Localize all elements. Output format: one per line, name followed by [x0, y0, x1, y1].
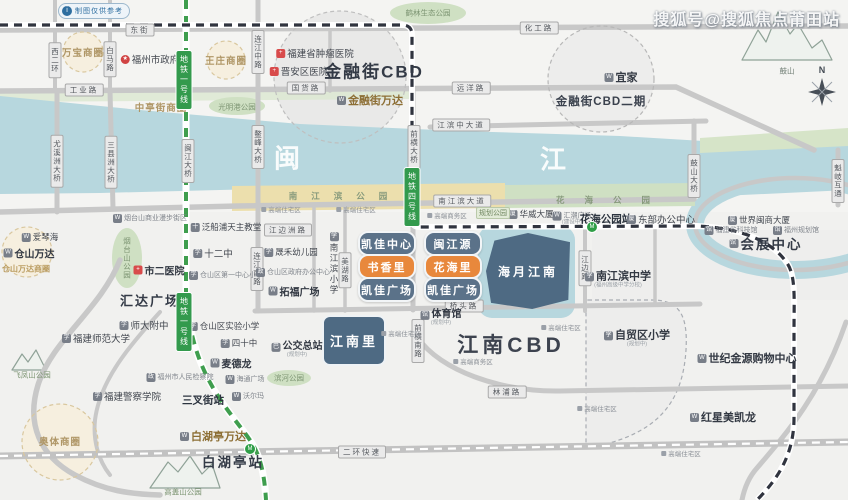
poi-text: 王庄商圈 [205, 53, 247, 67]
dot-icon [541, 325, 546, 330]
poi-label: W宜家 [605, 69, 638, 85]
poi-text: 晟禾幼儿园 [275, 246, 318, 258]
poi-text: 金融街CBD二期 [556, 93, 646, 109]
poi-label: 王庄商圈 [205, 53, 247, 67]
poi-label: 学师大附中 [119, 318, 168, 332]
shop-icon: W [226, 375, 235, 384]
shop-icon: W [113, 214, 122, 223]
poi-text: 奥体商圈 [39, 434, 81, 448]
road-label: 远洋路 [452, 82, 491, 95]
poi-label: 高端住宅区 [661, 448, 701, 458]
badge-text: 制图仅供参考 [75, 6, 123, 16]
poi-text: 四十中 [232, 337, 258, 349]
road-label: 鼓山大桥 [688, 154, 701, 198]
shop-icon: W [337, 96, 346, 105]
project-box: 花海里 [424, 254, 482, 279]
poi-label: 白湖亭站 [202, 451, 264, 471]
poi-text: 世纪金源购物中心 [709, 350, 797, 366]
dot-icon [336, 207, 341, 212]
hosp-icon: + [270, 67, 279, 76]
project-box: 闽江源 [424, 231, 482, 256]
poi-subtext: (福州高级中学分校) [594, 283, 642, 289]
school-icon: 学 [585, 273, 594, 282]
metro-station-label: 三叉街站 [182, 393, 224, 408]
shop-icon: W [553, 212, 562, 221]
poi-label: W世纪金源购物中心 [698, 350, 797, 366]
shop-icon: W [22, 233, 31, 242]
poi-text: 高端商务区 [434, 210, 467, 220]
poi-label: W红星美凯龙 [690, 409, 756, 425]
park-label: 烟台山公园 [122, 237, 133, 280]
school-icon: 学 [119, 321, 128, 330]
park-label: 滨河公园 [274, 373, 304, 384]
poi-text: 十二中 [204, 246, 233, 260]
road-label: 东街 [126, 24, 155, 37]
poi-label: 高端商务区 [453, 356, 493, 366]
shop-icon: W [690, 413, 699, 422]
poi-text: 福建警察学院 [104, 389, 161, 403]
poi-text: 仓山区第一中心小学 [200, 270, 263, 280]
hosp-icon: + [134, 266, 143, 275]
poi-text: 福州市人民检察院 [158, 372, 214, 382]
park-label: 高盖山公园 [164, 487, 202, 498]
poi-text: 福建师范大学 [73, 331, 130, 345]
poi-label: 政福州市人民检察院 [147, 372, 214, 382]
school-icon: 学 [193, 249, 202, 258]
gov-icon: ★ [121, 55, 130, 64]
metro-line-tag: 地铁四号线 [404, 167, 421, 227]
road-label: 江边洲路 [264, 224, 312, 237]
shop-icon: W [232, 392, 241, 401]
poi-label: 巴公交总站(规划中) [272, 342, 323, 358]
road-label: 林浦路 [488, 386, 527, 399]
poi-text: 市二医院 [145, 263, 185, 278]
road-label: 鳌峰大桥 [252, 125, 265, 169]
poi-label: 金融街CBD二期 [556, 93, 646, 109]
school-icon: 学 [93, 392, 102, 401]
poi-label: 学四十中 [221, 337, 258, 349]
poi-text: 高端住宅区 [343, 204, 376, 214]
poi-text: 华威大厦 [519, 208, 553, 220]
shop-icon: W [269, 287, 278, 296]
road-label: 国货路 [287, 82, 326, 95]
info-icon: i [62, 6, 72, 16]
poi-label: 学南江滨小学 [328, 232, 340, 296]
park-strip-label: 南江滨公园 [289, 190, 402, 202]
poi-label: W白湖亭万达 [180, 428, 246, 444]
poi-label: 学南江滨中学(福州高级中学分校) [585, 271, 651, 288]
school-icon: 学 [264, 248, 273, 257]
poi-text: 仓山区政府办公中心 [267, 267, 330, 277]
poi-label: 馆会展中心 [730, 233, 803, 253]
poi-text: 高端住宅区 [584, 403, 617, 413]
estate-block: 江南里 [322, 315, 386, 366]
estate-block: 海月江南 [486, 233, 570, 309]
road-label: 连江中路 [252, 30, 265, 74]
river-name-char: 江 [540, 140, 566, 177]
shop-icon: W [698, 354, 707, 363]
dot-icon [261, 207, 266, 212]
poi-label: 高端住宅区 [336, 204, 376, 214]
poi-text: 公交总站 [283, 342, 323, 353]
poi-label: W烟台山商业漫步街区 [113, 213, 187, 223]
poi-label: 馆体育馆(规划中) [421, 310, 462, 326]
compass-north-label: N [819, 65, 826, 75]
park-strip-label: 花海公园 [556, 194, 670, 206]
project-box: 凯佳广场 [424, 277, 482, 302]
poi-text: 汇达广场 [120, 291, 180, 310]
poi-label: 金融街CBD [324, 58, 424, 83]
poi-text: 规划公园 [479, 208, 507, 218]
metro-station-icon: M [586, 221, 598, 233]
poi-text: 仓山万达商圈 [2, 264, 50, 275]
location-map: ★福州市政府+福建省肿瘤医院+晋安区医院金融街CBDW金融街万达W宜家金融街CB… [0, 0, 848, 500]
labels-layer: ★福州市政府+福建省肿瘤医院+晋安区医院金融街CBDW金融街万达W宜家金融街CB… [0, 0, 848, 500]
mountain-label: 鼓山 [780, 66, 795, 77]
metro-line-tag: 地铁一号线 [176, 292, 193, 352]
park-label: 光明港公园 [218, 102, 256, 113]
road-label: 尤溪洲大桥 [51, 135, 64, 188]
poi-label: 学福建警察学院 [93, 389, 161, 403]
poi-text: 师大附中 [130, 318, 168, 332]
poi-label: 高端住宅区 [577, 403, 617, 413]
road-label: 江滨中大道 [432, 119, 490, 132]
road-label: 化工路 [520, 22, 559, 35]
road-label: 南江滨大道 [433, 195, 491, 208]
poi-label: W金融街万达 [337, 92, 403, 108]
poi-label: W沃尔玛 [232, 391, 264, 401]
poi-label: 高端住宅区 [381, 328, 421, 338]
park-label: 飞凤山公园 [13, 370, 51, 381]
poi-text: 拓福广场 [280, 284, 320, 299]
river-name-char: 闽 [274, 139, 300, 176]
poi-text: 宜家 [616, 69, 638, 85]
poi-label: W麦德龙 [211, 356, 252, 371]
poi-text: 体育馆 [432, 310, 462, 321]
poi-text: 晋安区医院 [281, 64, 329, 78]
poi-label: 学十二中 [193, 246, 233, 260]
poi-text: 烟台山商业漫步街区 [124, 213, 187, 223]
dot-icon [381, 331, 386, 336]
poi-text: 高端住宅区 [268, 204, 301, 214]
shop-icon: W [4, 249, 13, 258]
watermark: 搜狐号@搜狐焦点莆田站 [653, 6, 840, 30]
poi-text: 高端住宅区 [668, 448, 701, 458]
poi-label: +市二医院 [134, 263, 185, 278]
poi-text: 自贸区小学 [615, 330, 670, 342]
poi-text: 南江滨小学 [328, 243, 340, 296]
poi-label: 学福建师范大学 [62, 331, 130, 345]
gov2-icon: 政 [256, 268, 265, 277]
poi-label: 厦东部办公中心 [627, 212, 695, 226]
poi-label: W海通广场 [226, 374, 265, 384]
poi-label: 奥体商圈 [39, 434, 81, 448]
school-icon: 学 [189, 271, 198, 280]
poi-text: 爱琴海 [33, 231, 59, 243]
poi-label: 万宝商圈 [62, 45, 104, 59]
bldg-icon: 厦 [627, 215, 636, 224]
bldg-icon: 厦 [728, 216, 737, 225]
dot-icon [453, 359, 458, 364]
gov2-icon: 政 [147, 373, 156, 382]
road-label: 三县洲大桥 [105, 136, 118, 189]
school-icon: 学 [62, 334, 71, 343]
road-label: 美湖路 [339, 252, 352, 288]
poi-label: 江南CBD [457, 329, 565, 359]
road-label: 闽江大桥 [182, 139, 195, 183]
poi-label: W爱琴海 [22, 231, 59, 243]
poi-label: 学晟禾幼儿园 [264, 246, 318, 258]
park-label: 鹤林生态公园 [406, 8, 451, 19]
poi-text: 三叉街站 [182, 393, 224, 408]
road-label: 工业路 [65, 84, 104, 97]
poi-text: 白湖亭万达 [191, 428, 246, 444]
project-box: 凯佳中心 [358, 231, 416, 256]
hosp-icon: + [276, 49, 285, 58]
dot-icon [577, 406, 582, 411]
project-box: 凯佳广场 [358, 277, 416, 302]
dot-icon [427, 213, 432, 218]
poi-text: 万宝商圈 [62, 45, 104, 59]
poi-text: 金融街万达 [348, 92, 403, 108]
bus-icon: 巴 [272, 343, 281, 352]
poi-label: 学仓山区第一中心小学 [189, 270, 263, 280]
poi-text: 金融街CBD [324, 58, 424, 83]
poi-text: 福州市政府 [132, 52, 180, 66]
poi-text: 仓山区实验小学 [200, 320, 260, 332]
school-icon: 学 [604, 332, 613, 341]
poi-label: 汇达广场 [120, 291, 180, 310]
road-label: 二环快速 [338, 446, 386, 459]
mus-icon: 馆 [705, 226, 714, 235]
poi-subtext: (规划中) [431, 320, 451, 326]
poi-label: 十泛船浦天主教堂 [191, 221, 262, 233]
poi-label: W仓山万达 [4, 246, 55, 261]
map-disclaimer-badge: i 制图仅供参考 [58, 3, 130, 19]
poi-text: 高端住宅区 [548, 322, 581, 332]
project-box: 书香里 [358, 254, 416, 279]
poi-label: W拓福广场 [269, 284, 320, 299]
poi-text: 高端商务区 [460, 356, 493, 366]
shop-icon: W [211, 359, 220, 368]
poi-label: 高端住宅区 [541, 322, 581, 332]
poi-subtext: (规划中) [287, 352, 307, 358]
metro-station-icon: M [244, 443, 256, 455]
poi-text: 仓山万达 [15, 246, 55, 261]
church-icon: 十 [191, 223, 200, 232]
mus-icon: 馆 [730, 239, 739, 248]
mus-icon: 馆 [421, 311, 430, 320]
road-label: 西二环 [49, 42, 62, 78]
school-icon: 学 [330, 232, 339, 241]
poi-label: 学仓山区实验小学 [189, 320, 260, 332]
poi-text: 会展中心 [741, 233, 803, 253]
poi-label: ★福州市政府 [121, 52, 180, 66]
poi-text: 江南CBD [457, 329, 565, 359]
poi-text: 白湖亭站 [202, 451, 264, 471]
poi-label: 仓山万达商圈 [2, 264, 50, 275]
road-label: 前横大桥 [408, 125, 421, 169]
poi-label: 高端住宅区 [261, 204, 301, 214]
shop-icon: W [180, 432, 189, 441]
poi-text: 泛船浦天主教堂 [202, 221, 262, 233]
school-icon: 学 [221, 339, 230, 348]
road-label: 白马路 [104, 41, 117, 77]
poi-text: 东部办公中心 [638, 212, 695, 226]
poi-label: 政仓山区政府办公中心 [256, 267, 330, 277]
poi-subtext: (规划中) [627, 342, 647, 348]
poi-label: +晋安区医院 [270, 64, 329, 78]
dot-icon [661, 451, 666, 456]
poi-label: 高端商务区 [427, 210, 467, 220]
poi-text: 沃尔玛 [243, 391, 264, 401]
road-label: 魁岐互通 [832, 159, 845, 203]
poi-label: 厦华威大厦 [508, 208, 553, 220]
poi-label: 规划公园 [476, 207, 510, 219]
metro-line-tag: 地铁一号线 [176, 50, 193, 110]
poi-text: 海通广场 [237, 374, 265, 384]
poi-text: 麦德龙 [222, 356, 252, 371]
poi-label: 学自贸区小学(规划中) [604, 330, 670, 347]
poi-text: 南江滨中学 [596, 271, 651, 283]
poi-text: 红星美凯龙 [701, 409, 756, 425]
shop-icon: W [605, 73, 614, 82]
poi-text: 高端住宅区 [388, 328, 421, 338]
